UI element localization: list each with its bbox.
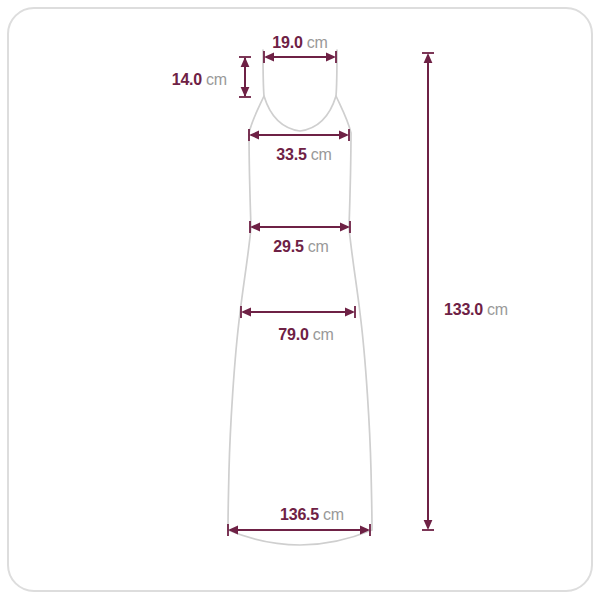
measurement-unit: cm (206, 71, 227, 88)
dimension-total-length (422, 53, 434, 530)
measurement-unit: cm (311, 146, 332, 163)
dimension-strap-length (239, 57, 251, 97)
size-guide-card: 19.0cm 14.0cm 33.5cm 29.5cm 79.0cm 136.5… (0, 0, 600, 600)
measurement-label-hem-width: 136.5cm (247, 505, 377, 525)
measurement-value: 29.5 (273, 238, 303, 255)
measurement-label-bust-width: 33.5cm (242, 145, 366, 165)
measurement-label-total-length: 133.0cm (444, 300, 508, 320)
measurement-unit: cm (307, 34, 328, 51)
measurement-label-waist-width: 29.5cm (240, 237, 362, 257)
measurement-label-strap-length: 14.0cm (120, 70, 227, 90)
measurement-value: 14.0 (172, 71, 202, 88)
measurement-value: 79.0 (278, 326, 308, 343)
measurement-unit: cm (323, 506, 344, 523)
measurement-unit: cm (308, 238, 329, 255)
measurement-label-top-width: 19.0cm (240, 33, 360, 53)
measurement-unit: cm (313, 326, 334, 343)
dimension-waist-width (250, 221, 350, 233)
measurement-value: 136.5 (280, 506, 319, 523)
measurement-value: 133.0 (444, 301, 483, 318)
dress-neckline (264, 96, 336, 131)
measurement-label-hip-width: 79.0cm (244, 325, 368, 345)
dress-outline (228, 50, 372, 545)
measurement-value: 19.0 (272, 34, 302, 51)
dimension-hem-width (228, 524, 370, 536)
measurement-unit: cm (487, 301, 508, 318)
measurement-value: 33.5 (276, 146, 306, 163)
dimension-hip-width (241, 306, 355, 318)
